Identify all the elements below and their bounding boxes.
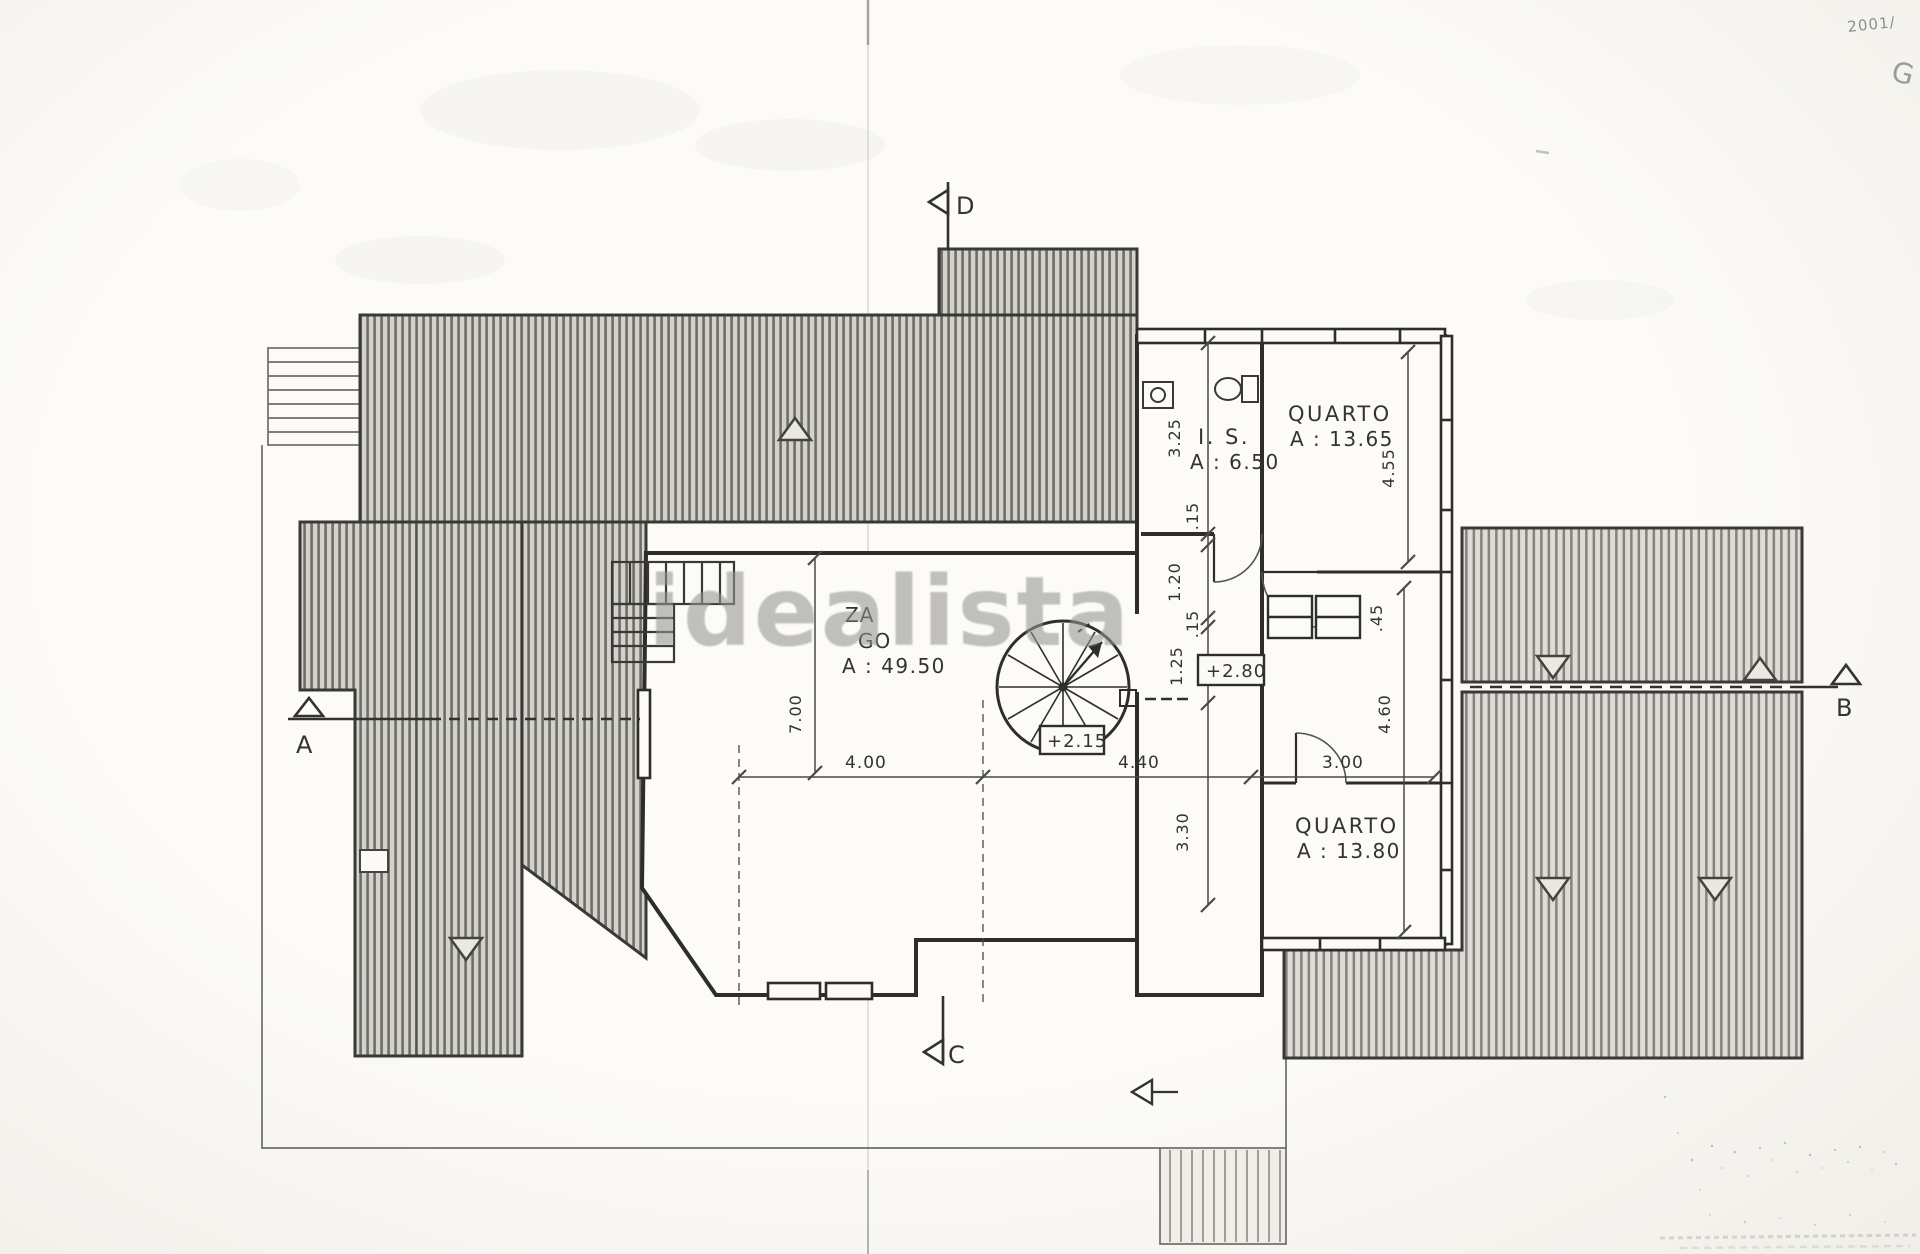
window-bay (768, 983, 820, 999)
room-area-bathroom: A : 6.50 (1190, 450, 1280, 474)
section-triangle-icon (295, 698, 323, 716)
room-area-bedroom-top: A : 13.65 (1290, 427, 1394, 451)
dim-horizontal-3: 3.00 (1322, 753, 1364, 773)
entrance-arrow (1132, 1080, 1178, 1104)
room-area-bedroom-bottom: A : 13.80 (1297, 839, 1401, 863)
roof-top-step (939, 249, 1137, 315)
dim-room-top-height: 4.55 (1379, 448, 1398, 488)
section-letter-b: B (1836, 694, 1852, 722)
entrance-steps-notch (1160, 1148, 1286, 1244)
dim-corridor-5: 1.25 (1167, 646, 1186, 686)
window-west (638, 690, 650, 778)
roof-left-inner (522, 522, 646, 958)
section-marker-d (929, 182, 948, 250)
dim-horizontal-1: 4.00 (845, 753, 887, 773)
roof-left-terrace (300, 522, 522, 1056)
living-area-value: A : 49.50 (842, 654, 946, 678)
living-label-fragment2: GO (858, 629, 891, 653)
section-letter-a: A (296, 731, 313, 759)
floor-plan-scan: QUARTO A : 13.65 QUARTO A : 13.80 I. S. … (0, 0, 1920, 1254)
section-letter-c: C (948, 1041, 965, 1069)
living-label-fragment1: ZA (845, 603, 874, 627)
room-label-bathroom: I. S. (1198, 425, 1250, 449)
section-letter-d: D (956, 192, 974, 220)
dim-closet-depth: .45 (1367, 604, 1386, 632)
living-room-outline (642, 553, 1137, 995)
roof-right-top (1462, 528, 1802, 682)
dim-corridor-3: 1.20 (1165, 562, 1184, 602)
section-triangle-icon (929, 190, 948, 214)
dim-living-height: 7.00 (786, 694, 805, 734)
section-triangle-icon (924, 1040, 943, 1064)
faint-stamp-speckles (1660, 1096, 1916, 1248)
handwritten-initial: G (1888, 55, 1917, 92)
sink-icon (1143, 382, 1173, 408)
boundary-column (360, 850, 388, 872)
dim-room-bottom-height: 4.60 (1375, 694, 1394, 734)
room-label-bedroom-top: QUARTO (1288, 402, 1392, 426)
toilet-icon (1215, 376, 1258, 402)
section-marker-c (924, 996, 943, 1064)
level-landing-value: +2.15 (1047, 731, 1107, 752)
window-bay (826, 983, 872, 999)
dim-corridor-4: .15 (1183, 610, 1202, 638)
dim-corridor-6: 3.30 (1173, 812, 1192, 852)
dim-horizontal-2: 4.40 (1118, 753, 1160, 773)
dim-corridor-2: .15 (1183, 502, 1202, 530)
dim-corridor-1: 3.25 (1165, 418, 1184, 458)
section-triangle-icon (1832, 665, 1860, 684)
room-label-bedroom-bottom: QUARTO (1295, 814, 1399, 838)
entrance-arrow-icon (1132, 1080, 1152, 1104)
level-upper-value: +2.80 (1206, 661, 1266, 682)
roof-top-main (360, 315, 1137, 522)
handwritten-note: 2001/ (1847, 13, 1897, 36)
